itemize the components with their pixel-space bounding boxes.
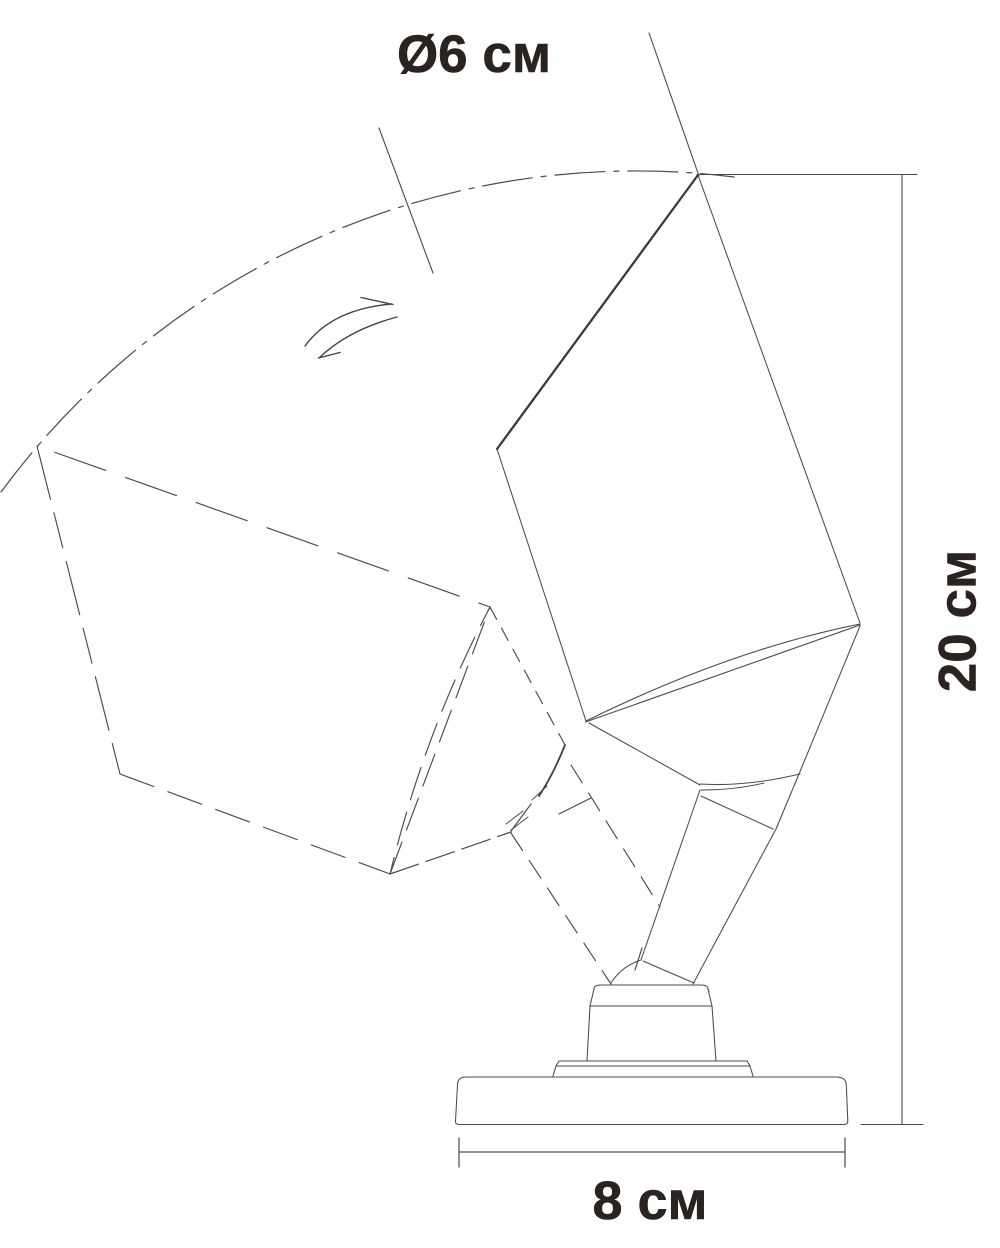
svg-text:8 см: 8 см: [592, 1171, 707, 1231]
svg-text:Ø6 см: Ø6 см: [397, 25, 551, 84]
svg-text:20 см: 20 см: [929, 550, 988, 692]
